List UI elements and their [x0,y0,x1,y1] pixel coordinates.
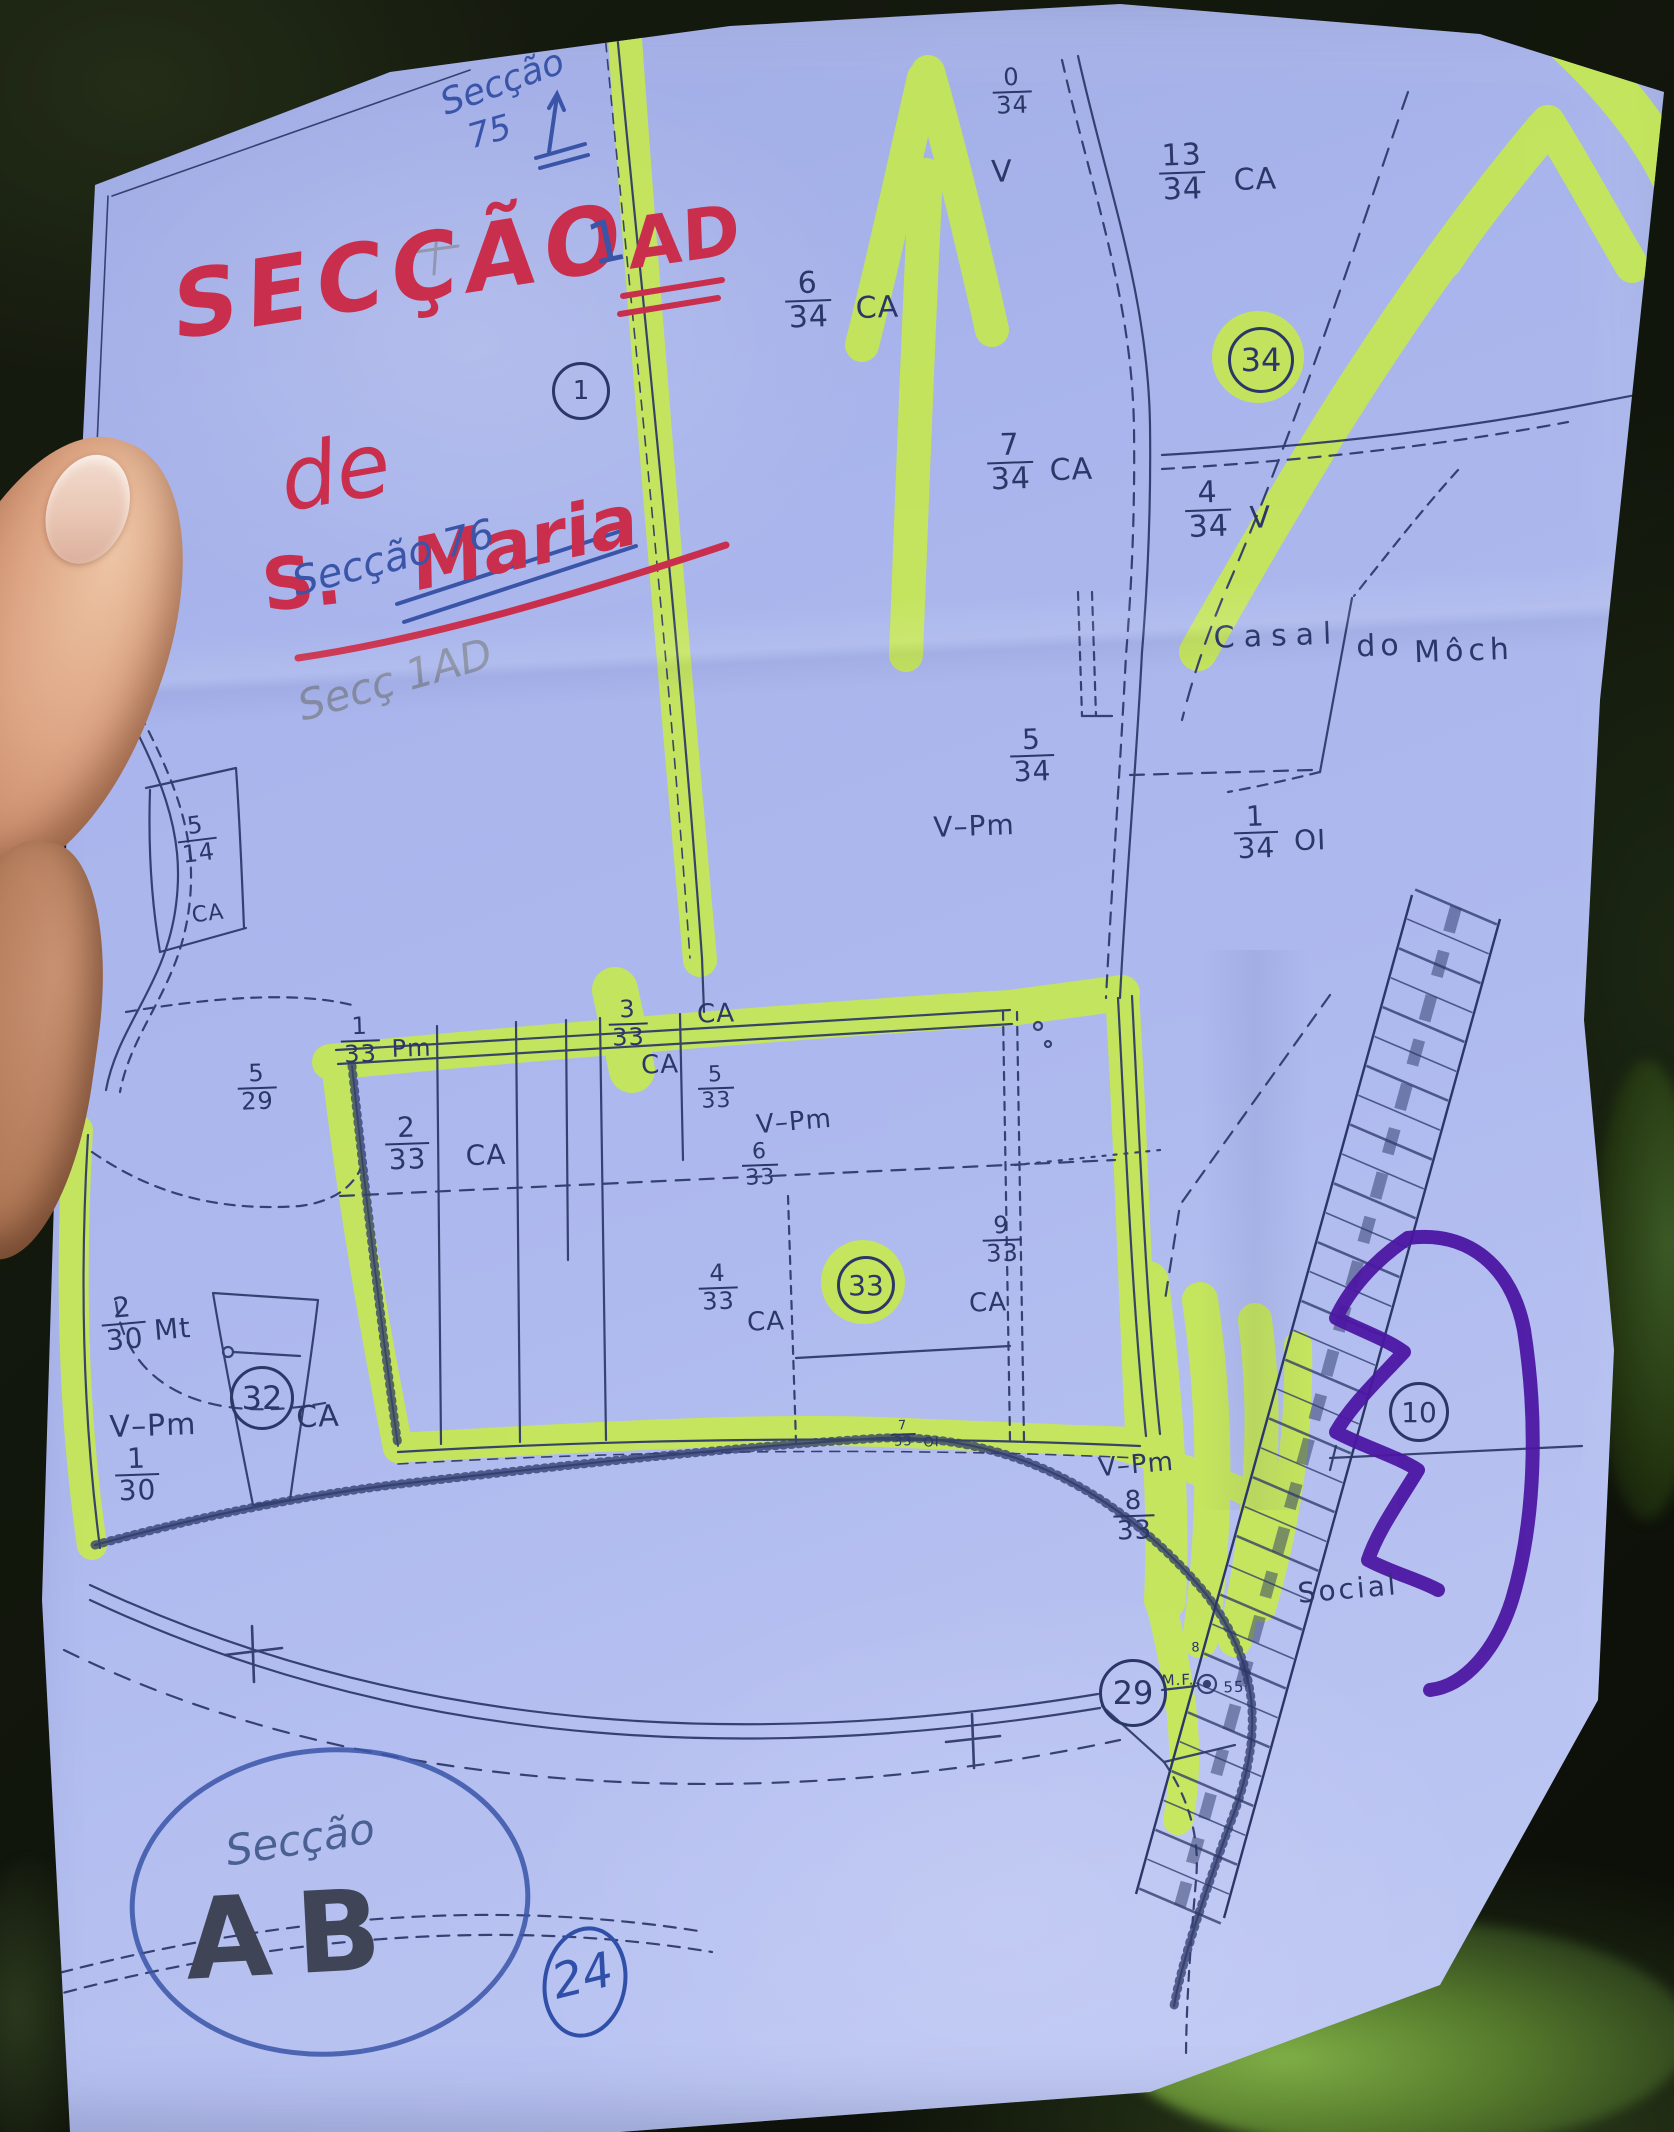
parcel-label-2-30: 230Mt [99,1287,193,1357]
parcel-label-0-34: 034 [992,64,1032,119]
map-text-CA: CA [697,998,736,1029]
paper-map: 034V1334CA634CA734CA434V534V–Pm134OI514C… [0,0,1674,2132]
thumbnail-nail [31,443,144,576]
red-de: de [272,411,398,532]
parcel-label-5-33: 533 [697,1063,735,1114]
photo-of-cadastral-map: { "scene": { "description": "hand holdin… [0,0,1674,2132]
map-text-8: 8 [1191,1640,1201,1655]
circled-number-1: 1 [552,362,610,420]
parcel-label-3-33: 333 [608,996,648,1051]
map-text-CA: CA [641,1049,680,1080]
parcel-label-4-33: 433 [698,1260,738,1315]
bottom-ab-letters: AB [182,1864,409,2005]
parcel-label-6-33: 633 [741,1140,779,1191]
circled-number-33: 33 [837,1256,895,1314]
parcel-label-1-33: 133Pm [340,1012,432,1069]
place-name-Casal: Casal [1213,616,1341,655]
parcel-label-7-33: 733OI [890,1418,940,1450]
circled-number-29: 29 [1099,1659,1167,1727]
parcel-label-1-30: 130 [114,1443,160,1507]
parcel-label-7-34: 734CA [986,427,1094,497]
parcel-label-13-34: 1334CA [1158,137,1278,208]
circled-number-10: 10 [1389,1382,1449,1442]
parcel-label-8-33: 833 [1112,1486,1155,1546]
parcel-label-9-33: 933 [982,1212,1022,1267]
parcel-label-2-33: 233 [384,1112,430,1176]
circled-number-32: 32 [230,1366,294,1430]
purple-marker-scribble [1336,1237,1533,1690]
map-text-CA: CA [969,1287,1008,1318]
map-text-V-Pm: V–Pm [933,808,1015,844]
parcel-label-6-34: 634CA [784,265,900,336]
place-name-do: do [1356,628,1405,665]
parcel-label-5-29: 529 [237,1060,277,1115]
parcel-label-1-34: 134OI [1233,799,1327,865]
map-text-CA: CA [465,1138,507,1172]
place-name-M-ch: Môch [1414,632,1515,670]
map-text-55: 55 [1223,1678,1245,1697]
map-text-V: V [991,154,1014,190]
red-ad: AD [627,188,741,286]
map-text-V-Pm: V–Pm [109,1407,197,1445]
parcel-label-5-14: 514 [175,811,220,869]
map-text-CA: CA [296,1399,341,1435]
parcel-label-4-34: 434V [1184,475,1272,545]
map-text-CA: CA [747,1306,786,1337]
circled-number-34: 34 [1228,327,1294,393]
map-text-CA: CA [190,900,225,929]
parcel-label-5-34: 534 [1009,724,1055,788]
